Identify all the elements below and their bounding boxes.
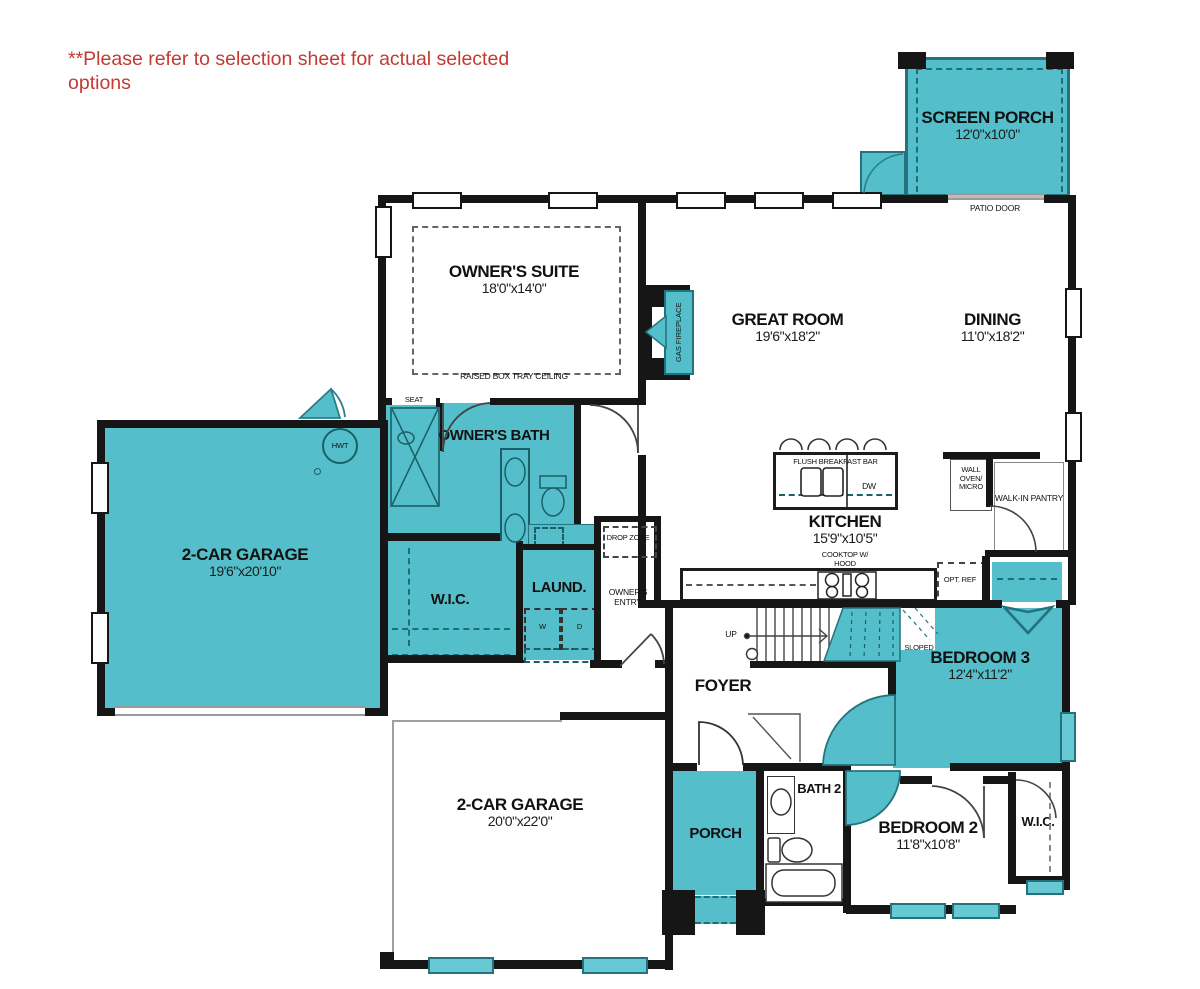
window bbox=[832, 192, 882, 209]
gas-fireplace: GAS FIREPLACE bbox=[664, 290, 694, 375]
wall bbox=[638, 203, 646, 285]
wall bbox=[380, 952, 394, 969]
garage-door-window bbox=[428, 957, 494, 974]
wall bbox=[560, 712, 673, 720]
wall bbox=[490, 398, 640, 405]
room-dims: 19'6"x18'2" bbox=[700, 329, 875, 345]
bedroom3-door bbox=[823, 695, 900, 825]
great-room-label: GREAT ROOM 19'6"x18'2" bbox=[700, 310, 875, 345]
porch-post bbox=[898, 52, 926, 69]
owners-bath-label: OWNER'S BATH bbox=[438, 428, 550, 445]
screen-porch-label: SCREEN PORCH 12'0"x10'0" bbox=[905, 108, 1070, 143]
wall bbox=[590, 660, 622, 668]
room-name: KITCHEN bbox=[770, 512, 920, 531]
garage-lower-wall-line bbox=[392, 720, 394, 966]
tray-ceiling-label: RAISED BOX TRAY CEILING bbox=[424, 372, 604, 382]
wic-owner-label: W.I.C. bbox=[400, 592, 500, 609]
window bbox=[412, 192, 462, 209]
washer-label: W bbox=[526, 610, 559, 644]
room-name: SCREEN PORCH bbox=[905, 108, 1070, 127]
room-pantry bbox=[994, 462, 1064, 554]
door-arc bbox=[300, 389, 345, 418]
dryer-label: D bbox=[563, 610, 596, 644]
dw-label: DW bbox=[852, 482, 886, 492]
window bbox=[1065, 412, 1082, 462]
garage-upper-label: 2-CAR GARAGE 19'6"x20'10" bbox=[140, 545, 350, 580]
window bbox=[754, 192, 804, 209]
room-dims: 20'0"x22'0" bbox=[420, 814, 620, 830]
bath2-vanity bbox=[767, 776, 795, 834]
kitchen-label: KITCHEN 15'9"x10'5" bbox=[770, 512, 920, 547]
wall bbox=[986, 459, 993, 507]
window bbox=[890, 903, 946, 919]
porch-label: PORCH bbox=[673, 826, 758, 843]
wall bbox=[888, 600, 896, 700]
room-dims: 12'4"x11'2" bbox=[900, 667, 1060, 683]
window bbox=[1060, 712, 1076, 762]
shower bbox=[390, 407, 440, 507]
wall bbox=[378, 655, 526, 663]
bedroom3-closet bbox=[992, 562, 1062, 602]
room-name: OWNER'S SUITE bbox=[434, 262, 594, 281]
room-dims: 15'9"x10'5" bbox=[770, 531, 920, 547]
room-name: BEDROOM 2 bbox=[848, 818, 1008, 837]
patio-door-slider bbox=[947, 193, 1045, 200]
counter-dash bbox=[686, 584, 816, 587]
laundry-label: LAUND. bbox=[520, 580, 598, 597]
garage-lower-label: 2-CAR GARAGE 20'0"x22'0" bbox=[420, 795, 620, 830]
door-arc bbox=[590, 405, 638, 453]
fireplace-surround bbox=[638, 285, 652, 380]
wall bbox=[516, 544, 598, 550]
window bbox=[952, 903, 1000, 919]
stairs bbox=[745, 608, 830, 661]
wic2-label: W.I.C. bbox=[1012, 815, 1064, 830]
pantry-label: WALK-IN PANTRY bbox=[992, 494, 1066, 504]
hwt-tank: HWT bbox=[322, 428, 358, 464]
room-name: 2-CAR GARAGE bbox=[140, 545, 350, 564]
wall bbox=[574, 398, 581, 540]
drop-zone-label: DROP ZONE bbox=[600, 534, 656, 543]
wall bbox=[756, 763, 764, 906]
room-bedroom3 bbox=[935, 608, 1062, 768]
hwt-label: HWT bbox=[324, 430, 356, 462]
gas-fireplace-label: GAS FIREPLACE bbox=[666, 292, 692, 373]
room-dims: 12'0"x10'0" bbox=[905, 127, 1070, 143]
wall bbox=[985, 550, 1070, 557]
bath2-label: BATH 2 bbox=[796, 782, 842, 797]
window bbox=[375, 206, 392, 258]
porch-step bbox=[860, 151, 906, 196]
garage-door-window bbox=[582, 957, 648, 974]
window bbox=[1065, 288, 1082, 338]
floor-plan: **Please refer to selection sheet for ac… bbox=[0, 0, 1200, 989]
window bbox=[91, 612, 109, 664]
front-door bbox=[699, 722, 743, 765]
shower-seat-label: SEAT bbox=[392, 396, 436, 405]
room-dims: 11'8"x10'8" bbox=[848, 837, 1008, 853]
dryer: D bbox=[561, 608, 598, 650]
wic-shelves bbox=[392, 628, 510, 656]
wall bbox=[516, 541, 523, 663]
bedroom3-label: BEDROOM 3 12'4"x11'2" bbox=[900, 648, 1060, 683]
room-dims: 11'0"x18'2" bbox=[920, 329, 1065, 345]
wall bbox=[878, 195, 948, 203]
wall bbox=[888, 600, 1002, 608]
window bbox=[676, 192, 726, 209]
washer: W bbox=[524, 608, 561, 650]
wall bbox=[750, 661, 898, 668]
window bbox=[91, 462, 109, 514]
room-name: 2-CAR GARAGE bbox=[420, 795, 620, 814]
closet-shelf-dash bbox=[997, 578, 1057, 581]
owners-suite-label: OWNER'S SUITE 18'0"x14'0" bbox=[434, 262, 594, 297]
window bbox=[548, 192, 598, 209]
up-label: UP bbox=[718, 630, 744, 640]
room-name: DINING bbox=[920, 310, 1065, 329]
foyer-label: FOYER bbox=[678, 676, 768, 695]
window bbox=[1026, 880, 1064, 895]
room-name: GREAT ROOM bbox=[700, 310, 875, 329]
wall bbox=[756, 898, 851, 906]
dining-label: DINING 11'0"x18'2" bbox=[920, 310, 1065, 345]
tray-ceiling-outline bbox=[412, 226, 621, 375]
floor-drain bbox=[314, 468, 321, 475]
disclaimer-note: **Please refer to selection sheet for ac… bbox=[68, 48, 523, 96]
garage-door-upper bbox=[115, 706, 365, 716]
wall bbox=[1068, 195, 1076, 605]
wall bbox=[982, 556, 990, 604]
room-name: BEDROOM 3 bbox=[900, 648, 1060, 667]
garage-lower-wall-line bbox=[392, 720, 562, 722]
wall bbox=[594, 516, 660, 522]
porch-post bbox=[1046, 52, 1074, 69]
wic2-shelf-dash bbox=[1048, 782, 1051, 872]
room-dims: 18'0"x14'0" bbox=[434, 281, 594, 297]
flush-bar-label: FLUSH BREAKFAST BAR bbox=[778, 458, 893, 467]
foyer-closet bbox=[748, 714, 800, 762]
wall bbox=[943, 452, 1040, 459]
bedroom2-label: BEDROOM 2 11'8"x10'8" bbox=[848, 818, 1008, 853]
porch-post bbox=[662, 890, 695, 935]
opt-ref-label: OPT. REF bbox=[934, 576, 986, 585]
wall bbox=[900, 776, 932, 784]
island-counter-dash bbox=[779, 494, 892, 497]
wall bbox=[950, 763, 1070, 771]
cooktop-label: COOKTOP W/ HOOD bbox=[810, 551, 880, 568]
room-dims: 19'6"x20'10" bbox=[140, 564, 350, 580]
island-stools bbox=[780, 439, 886, 450]
laundry-counter bbox=[524, 648, 598, 663]
porch-edge bbox=[695, 896, 736, 924]
wall bbox=[665, 763, 697, 771]
patio-door-label: PATIO DOOR bbox=[940, 204, 1050, 214]
